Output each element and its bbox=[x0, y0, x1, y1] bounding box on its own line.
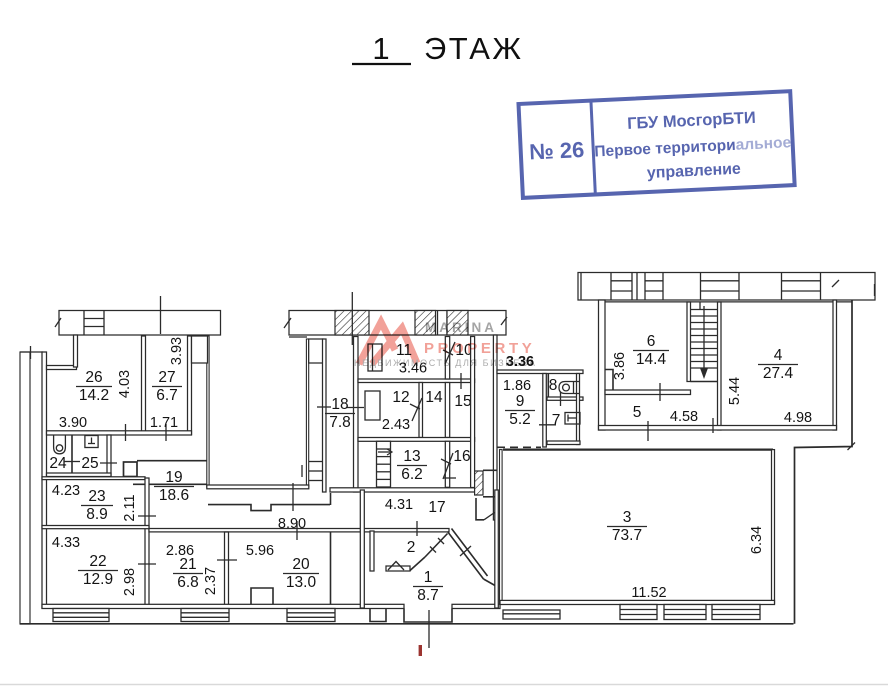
svg-text:27.4: 27.4 bbox=[763, 365, 794, 382]
svg-text:3.86: 3.86 bbox=[612, 352, 628, 380]
svg-text:4: 4 bbox=[774, 347, 783, 364]
svg-text:6.34: 6.34 bbox=[749, 526, 765, 554]
svg-text:18.6: 18.6 bbox=[159, 487, 189, 504]
svg-text:2.43: 2.43 bbox=[382, 417, 410, 433]
svg-text:22: 22 bbox=[89, 553, 106, 570]
svg-text:5: 5 bbox=[633, 404, 642, 421]
svg-text:12: 12 bbox=[392, 389, 409, 406]
svg-text:6: 6 bbox=[647, 333, 656, 350]
svg-text:2: 2 bbox=[407, 539, 416, 556]
svg-text:3.93: 3.93 bbox=[169, 337, 185, 365]
svg-text:1: 1 bbox=[372, 31, 389, 66]
svg-text:16: 16 bbox=[453, 448, 470, 465]
svg-text:PROPERTY: PROPERTY bbox=[424, 340, 535, 357]
svg-text:6.8: 6.8 bbox=[177, 574, 199, 591]
svg-text:4.31: 4.31 bbox=[385, 497, 413, 513]
svg-text:2.11: 2.11 bbox=[122, 494, 138, 521]
svg-text:5.2: 5.2 bbox=[509, 411, 531, 428]
svg-text:4.33: 4.33 bbox=[52, 535, 80, 551]
svg-text:23: 23 bbox=[88, 488, 105, 505]
svg-text:14: 14 bbox=[425, 389, 443, 406]
svg-text:3: 3 bbox=[623, 509, 632, 526]
svg-text:8: 8 bbox=[549, 377, 558, 394]
svg-text:№ 26: № 26 bbox=[529, 137, 585, 165]
svg-text:MARINA: MARINA bbox=[425, 320, 497, 335]
svg-text:13: 13 bbox=[403, 448, 420, 465]
svg-text:ЭТАЖ: ЭТАЖ bbox=[424, 31, 524, 66]
svg-text:26: 26 bbox=[85, 369, 102, 386]
svg-text:6.2: 6.2 bbox=[401, 466, 423, 483]
svg-text:8.9: 8.9 bbox=[86, 506, 108, 523]
svg-text:8.90: 8.90 bbox=[278, 516, 306, 532]
svg-text:2.98: 2.98 bbox=[122, 568, 138, 596]
svg-text:6.7: 6.7 bbox=[156, 387, 178, 404]
svg-text:73.7: 73.7 bbox=[612, 527, 642, 544]
svg-text:19: 19 bbox=[165, 469, 182, 486]
svg-text:НЕДВИЖИМОСТЬ ДЛЯ БИЗНЕСА: НЕДВИЖИМОСТЬ ДЛЯ БИЗНЕСА bbox=[354, 358, 536, 368]
svg-text:4.58: 4.58 bbox=[670, 409, 698, 425]
svg-text:8.7: 8.7 bbox=[417, 587, 439, 604]
svg-text:1.86: 1.86 bbox=[503, 378, 531, 394]
svg-text:14.2: 14.2 bbox=[79, 387, 109, 404]
svg-text:3.90: 3.90 bbox=[59, 415, 87, 431]
svg-text:5.96: 5.96 bbox=[246, 543, 274, 559]
svg-text:12.9: 12.9 bbox=[83, 571, 113, 588]
svg-text:24: 24 bbox=[49, 455, 67, 472]
svg-text:13.0: 13.0 bbox=[286, 574, 317, 591]
svg-text:18: 18 bbox=[331, 396, 348, 413]
svg-text:2.86: 2.86 bbox=[166, 543, 194, 559]
svg-text:5.44: 5.44 bbox=[727, 377, 743, 405]
svg-text:1: 1 bbox=[424, 569, 433, 586]
svg-text:2.37: 2.37 bbox=[203, 567, 219, 595]
svg-text:15: 15 bbox=[454, 393, 471, 410]
svg-text:4.03: 4.03 bbox=[117, 370, 133, 398]
svg-text:17: 17 bbox=[428, 499, 445, 516]
svg-text:27: 27 bbox=[158, 369, 175, 386]
svg-text:7.8: 7.8 bbox=[329, 414, 351, 431]
svg-text:14.4: 14.4 bbox=[636, 351, 667, 368]
svg-text:25: 25 bbox=[81, 455, 98, 472]
svg-text:4.23: 4.23 bbox=[52, 483, 80, 499]
svg-text:11.52: 11.52 bbox=[631, 585, 666, 601]
svg-text:4.98: 4.98 bbox=[784, 410, 812, 426]
svg-text:9: 9 bbox=[516, 393, 525, 410]
svg-text:7: 7 bbox=[552, 412, 561, 429]
svg-text:1.71: 1.71 bbox=[150, 415, 178, 431]
svg-text:20: 20 bbox=[292, 556, 310, 573]
